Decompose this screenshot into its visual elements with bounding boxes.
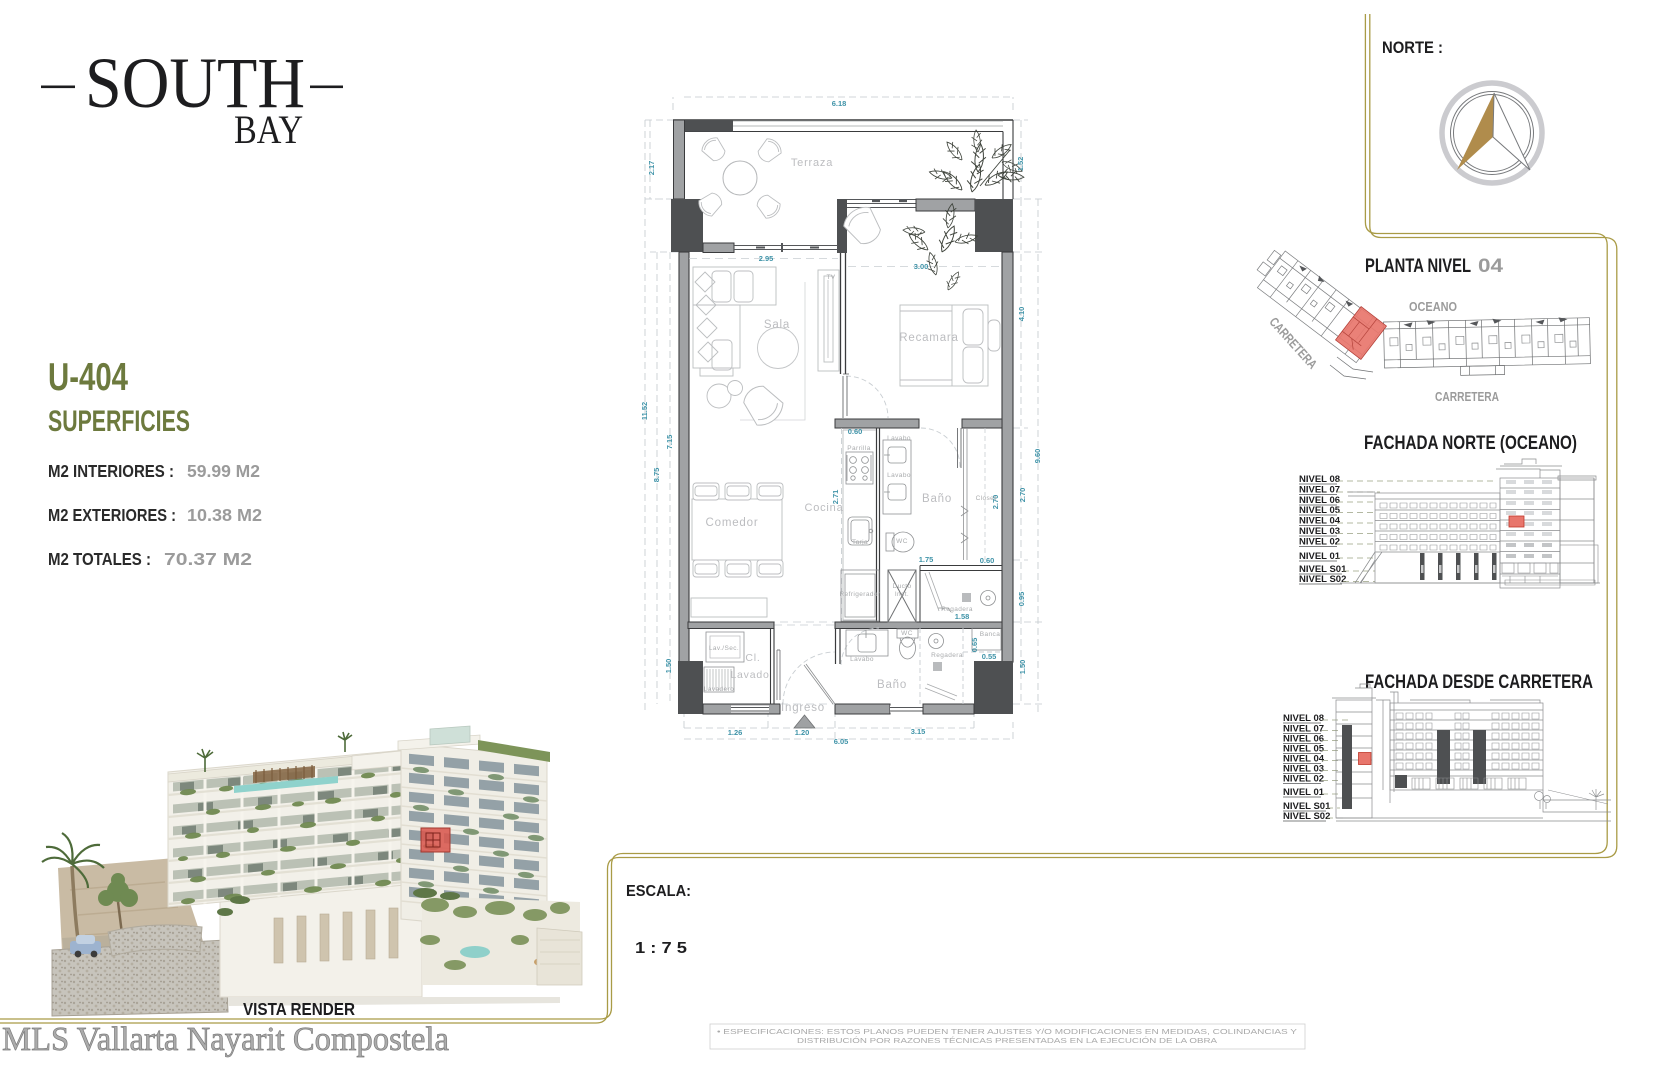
- svg-text:Lavabo: Lavabo: [887, 472, 911, 479]
- svg-text:0.60: 0.60: [848, 427, 863, 436]
- svg-text:NIVEL 01: NIVEL 01: [1283, 787, 1325, 798]
- svg-text:MLS Vallarta Nayarit Compostel: MLS Vallarta Nayarit Compostela: [2, 1021, 449, 1058]
- svg-text:0.60: 0.60: [980, 556, 995, 565]
- svg-text:Lavado: Lavado: [730, 669, 769, 681]
- svg-text:7.15: 7.15: [665, 435, 674, 450]
- svg-text:0.65: 0.65: [970, 638, 979, 653]
- svg-text:Sala: Sala: [764, 319, 790, 331]
- svg-text:Cocina: Cocina: [804, 502, 843, 514]
- svg-text:NIVEL 05: NIVEL 05: [1299, 505, 1341, 516]
- svg-text:Cl.: Cl.: [745, 652, 760, 664]
- svg-text:NIVEL S02: NIVEL S02: [1299, 574, 1346, 585]
- svg-text:M2 EXTERIORES :: M2 EXTERIORES :: [48, 505, 176, 525]
- svg-text:Recamara: Recamara: [899, 332, 958, 344]
- svg-text:3.15: 3.15: [911, 727, 926, 736]
- svg-text:Parrilla: Parrilla: [847, 445, 870, 452]
- svg-text:Banca: Banca: [980, 631, 1000, 638]
- svg-text:WC: WC: [896, 538, 908, 545]
- svg-text:NIVEL 04: NIVEL 04: [1299, 516, 1341, 527]
- svg-text:NIVEL 01: NIVEL 01: [1299, 551, 1341, 562]
- svg-text:1.26: 1.26: [728, 728, 743, 737]
- svg-text:4.10: 4.10: [1017, 307, 1026, 322]
- svg-text:FACHADA DESDE CARRETERA: FACHADA DESDE CARRETERA: [1365, 672, 1593, 693]
- svg-text:Inst.: Inst.: [895, 591, 909, 598]
- svg-text:1.58: 1.58: [955, 612, 970, 621]
- svg-text:1.75: 1.75: [919, 555, 934, 564]
- svg-text:Lavadero: Lavadero: [704, 686, 734, 693]
- svg-text:0.55: 0.55: [982, 652, 997, 661]
- svg-text:Terraza: Terraza: [791, 157, 833, 169]
- svg-text:6.18: 6.18: [832, 99, 847, 108]
- svg-text:WC: WC: [901, 630, 913, 637]
- svg-text:NIVEL 08: NIVEL 08: [1283, 713, 1324, 724]
- svg-text:1.52: 1.52: [1016, 157, 1025, 172]
- svg-text:1.50: 1.50: [664, 659, 673, 674]
- svg-text:PLANTA NIVEL: PLANTA NIVEL: [1365, 256, 1471, 277]
- svg-text:VISTA RENDER: VISTA RENDER: [243, 999, 355, 1019]
- svg-text:Baño: Baño: [877, 679, 907, 691]
- svg-text:• ESPECIFICACIONES: ESTOS PL: • ESPECIFICACIONES: ESTOS PLANOS PUEDEN …: [717, 1029, 1297, 1036]
- svg-text:CARRETERA: CARRETERA: [1266, 314, 1320, 372]
- svg-text:2.17: 2.17: [647, 161, 656, 176]
- svg-text:ESCALA:: ESCALA:: [626, 883, 691, 900]
- svg-text:M2 INTERIORES :: M2 INTERIORES :: [48, 461, 174, 481]
- svg-text:1 : 7 5: 1 : 7 5: [635, 940, 687, 957]
- svg-text:M2 TOTALES :: M2 TOTALES :: [48, 549, 151, 569]
- svg-text:NORTE :: NORTE :: [1382, 38, 1443, 57]
- svg-text:Closet: Closet: [976, 495, 997, 502]
- svg-text:Refrigerador: Refrigerador: [840, 591, 881, 598]
- svg-text:Comedor: Comedor: [706, 517, 759, 529]
- svg-text:Lav./Sec.: Lav./Sec.: [709, 645, 739, 652]
- svg-text:NIVEL 07: NIVEL 07: [1299, 485, 1340, 496]
- svg-text:Tarja: Tarja: [852, 539, 868, 546]
- svg-text:U-404: U-404: [48, 356, 128, 399]
- svg-text:2.70: 2.70: [1018, 488, 1027, 503]
- svg-text:04: 04: [1478, 256, 1504, 277]
- svg-text:0.95: 0.95: [1017, 592, 1026, 607]
- svg-text:BAY: BAY: [234, 107, 303, 152]
- svg-text:Regadera: Regadera: [941, 606, 973, 613]
- svg-text:TV: TV: [826, 274, 835, 281]
- svg-text:OCEANO: OCEANO: [1409, 299, 1457, 314]
- svg-text:Lavabo: Lavabo: [887, 435, 911, 442]
- svg-text:Lavabo: Lavabo: [850, 656, 874, 663]
- svg-text:2.95: 2.95: [759, 254, 774, 263]
- svg-text:NIVEL 02: NIVEL 02: [1283, 774, 1324, 785]
- svg-text:Ingreso: Ingreso: [781, 702, 825, 714]
- svg-text:59.99 M2: 59.99 M2: [187, 461, 260, 481]
- svg-text:NIVEL 08: NIVEL 08: [1299, 474, 1340, 485]
- svg-text:NIVEL 02: NIVEL 02: [1299, 537, 1340, 548]
- svg-text:DISTRIBUCIÓN POR RAZONES TÉ: DISTRIBUCIÓN POR RAZONES TÉCNICAS PRESEN…: [797, 1036, 1217, 1045]
- svg-text:NIVEL S02: NIVEL S02: [1283, 811, 1330, 822]
- svg-text:CARRETERA: CARRETERA: [1435, 389, 1499, 404]
- svg-text:FACHADA NORTE (OCEANO): FACHADA NORTE (OCEANO): [1364, 433, 1577, 454]
- svg-text:9.60: 9.60: [1033, 449, 1042, 464]
- svg-text:1.20: 1.20: [795, 728, 810, 737]
- svg-text:Ducto: Ducto: [893, 583, 912, 590]
- svg-text:11.52: 11.52: [640, 402, 649, 420]
- svg-text:8.75: 8.75: [652, 468, 661, 483]
- svg-text:3.00: 3.00: [914, 262, 929, 271]
- svg-text:SUPERFICIES: SUPERFICIES: [48, 405, 190, 438]
- svg-text:10.38 M2: 10.38 M2: [187, 505, 262, 525]
- svg-text:Baño: Baño: [922, 493, 952, 505]
- svg-text:1.50: 1.50: [1018, 660, 1027, 675]
- svg-text:6.05: 6.05: [834, 737, 849, 746]
- svg-text:NIVEL 03: NIVEL 03: [1299, 526, 1340, 537]
- svg-text:Regadera: Regadera: [931, 652, 963, 659]
- svg-text:70.37 M2: 70.37 M2: [164, 549, 252, 569]
